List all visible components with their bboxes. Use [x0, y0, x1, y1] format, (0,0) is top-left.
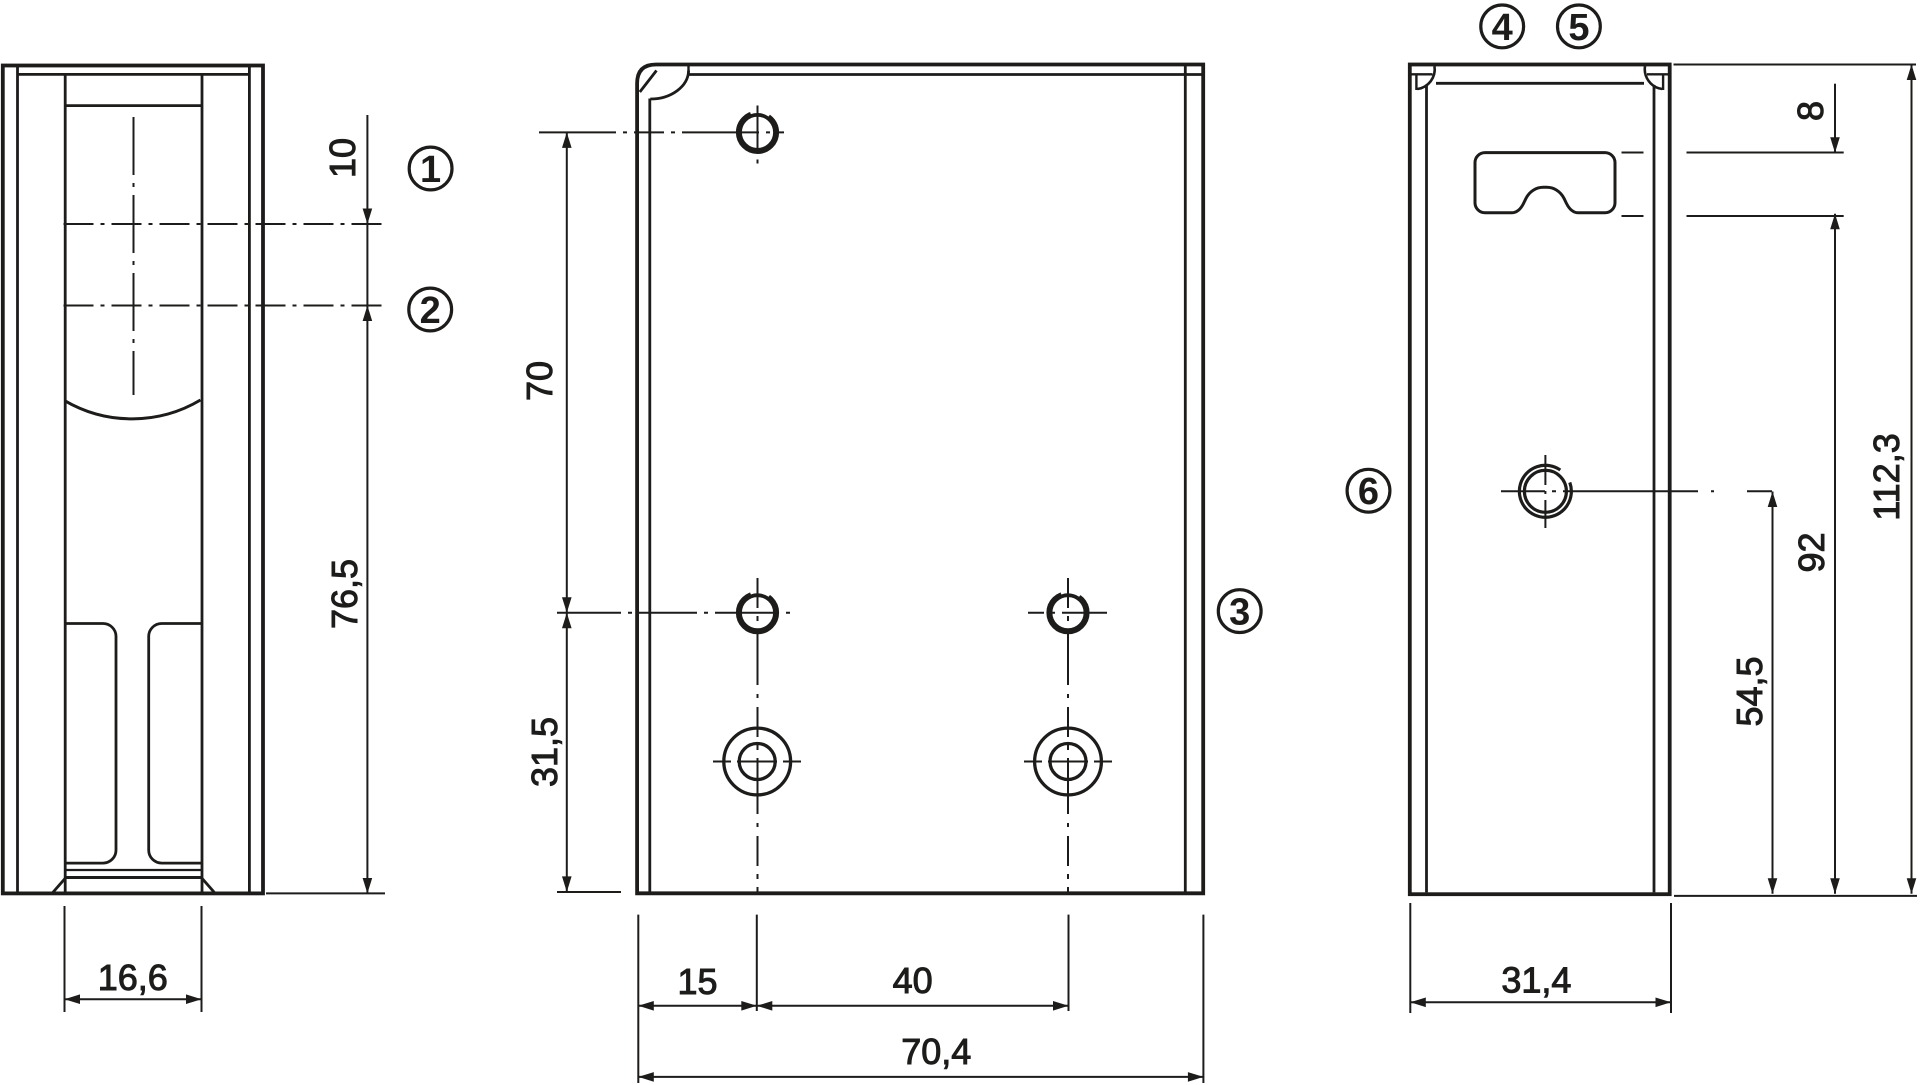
- svg-text:8: 8: [1790, 101, 1831, 121]
- svg-text:54,5: 54,5: [1729, 656, 1770, 726]
- svg-text:70: 70: [519, 361, 560, 401]
- svg-text:15: 15: [677, 961, 717, 1002]
- svg-text:5: 5: [1568, 7, 1589, 49]
- svg-text:92: 92: [1791, 532, 1832, 572]
- svg-text:40: 40: [893, 960, 933, 1001]
- svg-text:6: 6: [1358, 471, 1379, 513]
- svg-text:10: 10: [322, 138, 363, 178]
- svg-text:4: 4: [1492, 7, 1513, 49]
- svg-text:70,4: 70,4: [901, 1031, 971, 1072]
- svg-text:112,3: 112,3: [1866, 433, 1907, 520]
- svg-text:2: 2: [420, 290, 441, 332]
- svg-text:31,4: 31,4: [1501, 960, 1571, 1001]
- svg-text:16,6: 16,6: [98, 957, 168, 998]
- svg-text:31,5: 31,5: [524, 717, 565, 787]
- svg-text:3: 3: [1229, 592, 1250, 634]
- svg-text:1: 1: [420, 149, 441, 191]
- svg-text:76,5: 76,5: [324, 559, 365, 629]
